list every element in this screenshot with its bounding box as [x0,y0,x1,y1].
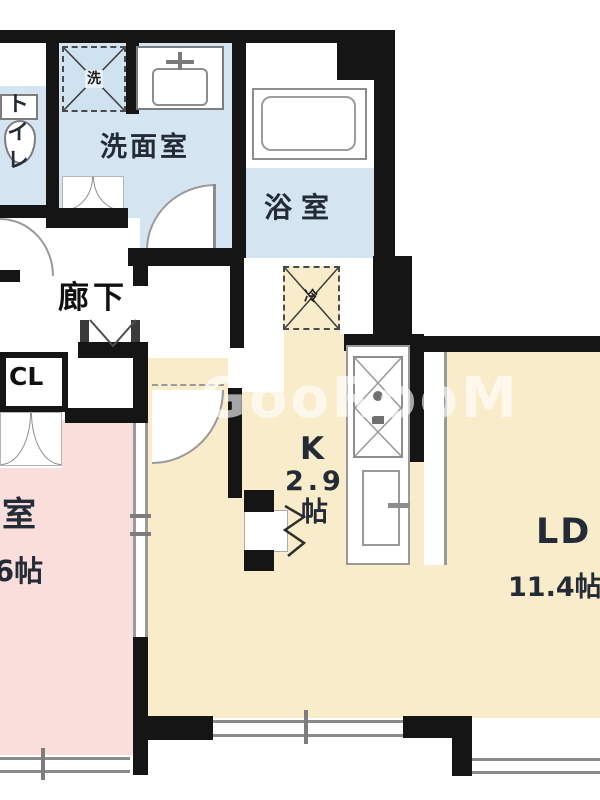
wall-hallway-left-stub [0,270,20,282]
wall-hallway-right [230,248,244,348]
door-leaf-left [63,177,93,211]
western-room-fill-top [62,420,133,468]
kitchen-cabinet-handle [388,503,410,508]
hallway-label: 廊下 [58,283,128,314]
door-leaf-right [31,413,61,465]
wall-hallway-stub [133,250,148,286]
washing-machine-pan: 洗 [62,46,126,112]
door-leaf-right [93,177,123,211]
wall-washroom-bottom-left [46,208,128,228]
western-room-label: 洋室 [0,498,38,532]
kitchen-label: K [300,434,324,465]
kitchen-size: 2.9 [285,468,345,495]
window-tick [304,710,308,744]
watermark: GooRooM [200,366,520,431]
window-tick [41,748,45,780]
sliding-door-handle [130,514,151,518]
wall-accordion-stub-top [244,490,274,512]
bathtub-inner [261,96,356,151]
bathroom-label: 浴室 [264,194,338,222]
kitchen-size-unit: 帖 [301,499,328,526]
wall-accordion-stub-bottom [244,550,274,571]
refrigerator-space: 冷 [283,266,340,330]
living-dining-label: LD [536,515,591,550]
gap-right-of-fridge [340,264,375,334]
sliding-partition [133,422,148,637]
living-dining-size: 11.4帖 [508,574,600,601]
western-room-size: 6帖 [0,557,43,586]
floorplan: 洗 冷 [0,0,600,800]
wall-washroom-bathroom [232,42,246,258]
ld-window-right [472,758,600,774]
closet-double-door [0,412,62,466]
wall-block-right [373,256,412,346]
wall-bathroom-right [374,42,395,260]
wall-western-room-top [65,408,148,423]
vanity-faucet-bar [166,60,194,64]
vanity-unit [136,46,224,110]
wall-bottom-step-v [452,736,472,776]
wall-western-kitchen [133,637,148,775]
bathtub [252,88,367,160]
door-leaf-left [1,413,31,465]
wall-toilet-right [46,42,59,218]
toilet-label: トイレ [4,92,26,176]
kitchen-cabinet [362,470,400,546]
folding-door-icon [88,318,138,350]
wall-toilet-bottom [0,205,48,218]
refrigerator-label: 冷 [304,290,318,304]
western-room-window [0,757,130,773]
washroom-door-leaf [213,184,216,250]
wall-bottom-step-h [403,716,472,738]
washroom-label: 洗面室 [100,134,190,161]
wall-bottom-left [133,716,213,740]
wall-ld-top [395,336,600,352]
washroom-double-door [62,176,124,212]
closet-label: CL [9,364,43,389]
vanity-basin [152,68,208,106]
sliding-door-handle [130,532,151,536]
ld-window-left [213,720,403,737]
washing-machine-label: 洗 [87,72,101,86]
